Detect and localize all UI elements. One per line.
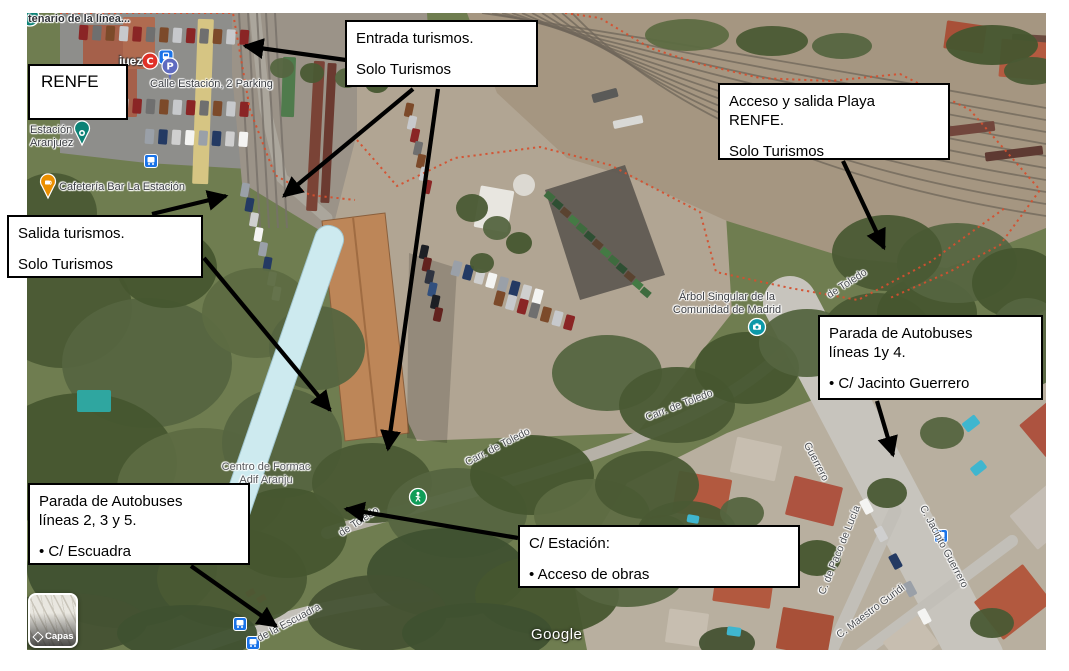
callout-line: Salida turismos.: [18, 224, 192, 243]
label-cafeteria-bar-la-estacion[interactable]: Cafetería Bar La Estación: [59, 181, 185, 194]
cafe-pin[interactable]: [35, 171, 61, 206]
callout-line: RENFE: [41, 72, 115, 91]
callout-line: Solo Turismos: [356, 60, 527, 79]
callout-calle-estacion-obras: C/ Estación: • Acceso de obras: [518, 525, 800, 588]
callout-renfe: RENFE: [28, 64, 128, 120]
callout-line: • C/ Jacinto Guerrero: [829, 374, 1032, 393]
svg-text:P: P: [166, 62, 173, 73]
callout-parada-autobuses-2-3-5: Parada de Autobuses líneas 2, 3 y 5. • C…: [28, 483, 250, 565]
callout-line: C/ Estación:: [529, 534, 789, 553]
layers-label: Capas: [45, 631, 74, 642]
callout-line: Parada de Autobuses líneas 1y 4.: [829, 324, 1032, 362]
label-arbol-singular[interactable]: Árbol Singular de la Comunidad de Madrid: [668, 291, 786, 316]
callout-line: Solo Turismos: [18, 255, 192, 274]
photo-pin[interactable]: [744, 312, 770, 347]
callout-line: Solo Turismos: [729, 142, 939, 161]
callout-line: • Acceso de obras: [529, 565, 789, 584]
layers-icon: [32, 631, 43, 642]
google-watermark: Google: [531, 626, 582, 643]
annotated-map-page: CP tenario de la línea...juezCalle Estac…: [0, 0, 1069, 671]
callout-line: • C/ Escuadra: [39, 542, 239, 561]
callout-entrada-turismos: Entrada turismos. Solo Turismos: [345, 20, 538, 87]
callout-parada-autobuses-1-4: Parada de Autobuses líneas 1y 4. • C/ Ja…: [818, 315, 1043, 400]
callout-salida-turismos: Salida turismos. Solo Turismos: [7, 215, 203, 278]
label-centenario[interactable]: tenario de la línea...: [28, 13, 130, 26]
callout-line: Parada de Autobuses líneas 2, 3 y 5.: [39, 492, 239, 530]
label-calle-estacion-parking[interactable]: Calle Estación, 2 Parking: [150, 78, 273, 91]
label-estacion-aranjuez[interactable]: Estación Aranjuez: [30, 124, 73, 149]
callout-line: Acceso y salida Playa RENFE.: [729, 92, 939, 130]
callout-line: Entrada turismos.: [356, 29, 527, 48]
layers-control[interactable]: Capas: [28, 593, 78, 648]
bus-stop-icon-1[interactable]: [138, 146, 164, 181]
callout-acceso-salida-playa: Acceso y salida Playa RENFE. Solo Turism…: [718, 83, 950, 160]
pedestrian-pin[interactable]: [405, 482, 431, 517]
